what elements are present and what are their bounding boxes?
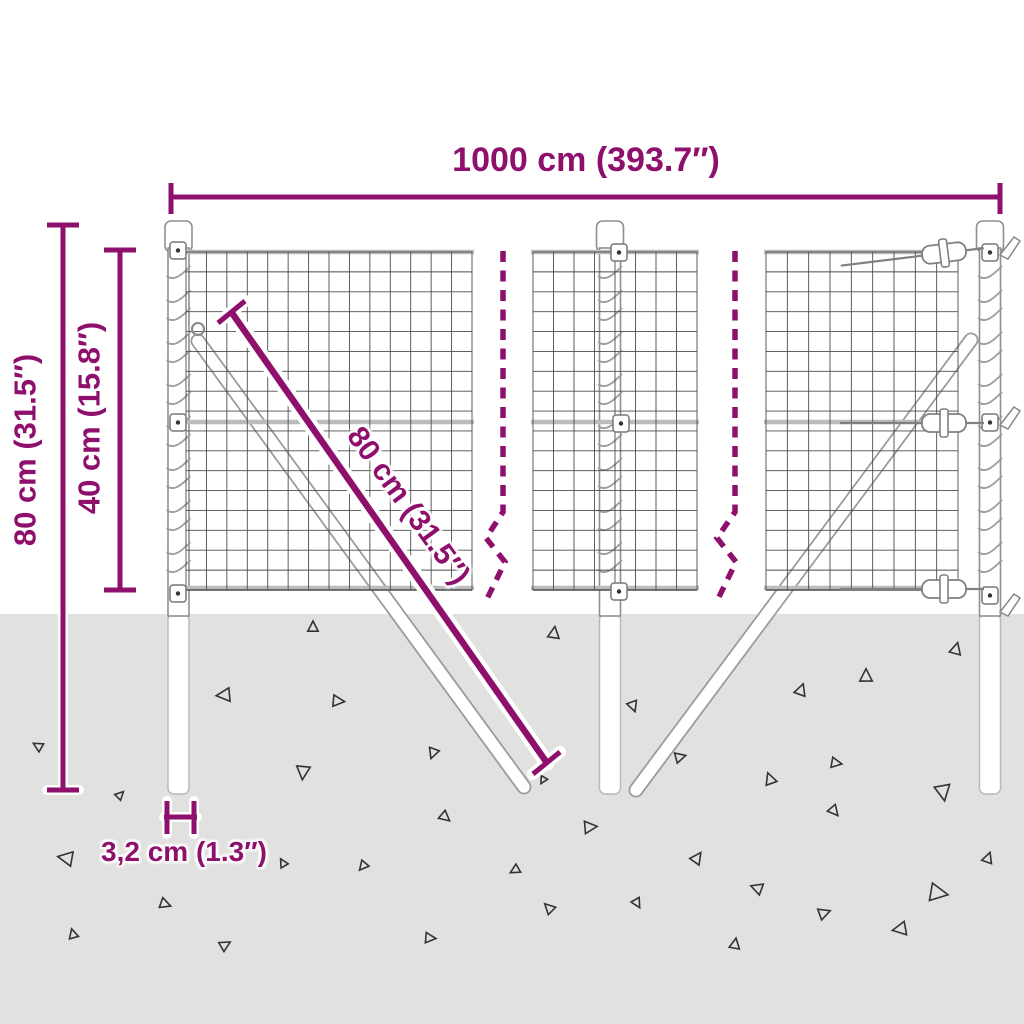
clamp-bolt xyxy=(176,591,180,595)
right-post-underground xyxy=(980,614,1001,794)
dimension-total-width xyxy=(171,183,1000,214)
tensioner-bolt xyxy=(940,575,948,603)
post-flag-bracket xyxy=(1000,594,1020,616)
diagram-canvas: 1000 cm (393.7″) 80 cm (31.5″) 40 cm (15… xyxy=(0,0,1024,1024)
clamp-bolt xyxy=(988,420,992,424)
break-mark-right xyxy=(717,251,736,601)
left-post-underground xyxy=(168,614,189,794)
left-post-clamp xyxy=(170,414,186,431)
right-post xyxy=(977,221,1004,794)
middle-post xyxy=(597,221,624,794)
dimension-panel-height xyxy=(104,250,136,590)
tensioner-bolt xyxy=(940,409,948,437)
middle-post-clamp xyxy=(613,415,629,432)
right-post-clamp xyxy=(982,414,998,431)
right-post-clamp xyxy=(982,587,998,604)
left-post-clamp xyxy=(170,585,186,602)
middle-post-clamp xyxy=(611,583,627,600)
clamp-bolt xyxy=(619,421,623,425)
ground xyxy=(0,614,1024,1024)
clamp-bolt xyxy=(176,420,180,424)
middle-post-clamp xyxy=(611,244,627,261)
break-mark-left xyxy=(486,251,505,601)
tensioner-rod xyxy=(841,256,922,266)
ground-surface xyxy=(0,614,1024,1024)
middle-post-underground xyxy=(600,614,621,794)
dimension-label-panel-height: 40 cm (15.8″) xyxy=(74,322,105,514)
clamp-bolt xyxy=(988,250,992,254)
post-flag-bracket xyxy=(1000,407,1020,429)
dimension-label-post-diameter: 3,2 cm (1.3″) xyxy=(101,838,267,866)
clamp-bolt xyxy=(617,250,621,254)
right-post-clamp xyxy=(982,244,998,261)
left-post-clamp xyxy=(170,242,186,259)
clamp-bolt xyxy=(176,248,180,252)
clamp-bolt xyxy=(988,593,992,597)
wire-tensioner xyxy=(840,575,984,603)
left-post xyxy=(165,221,192,794)
wire-tensioner xyxy=(839,234,985,279)
right-post-body xyxy=(980,248,1001,616)
dimension-label-total-width: 1000 cm (393.7″) xyxy=(452,143,720,177)
clamp-bolt xyxy=(617,589,621,593)
dimension-label-total-height: 80 cm (31.5″) xyxy=(10,354,41,546)
brace-ring xyxy=(192,323,204,335)
